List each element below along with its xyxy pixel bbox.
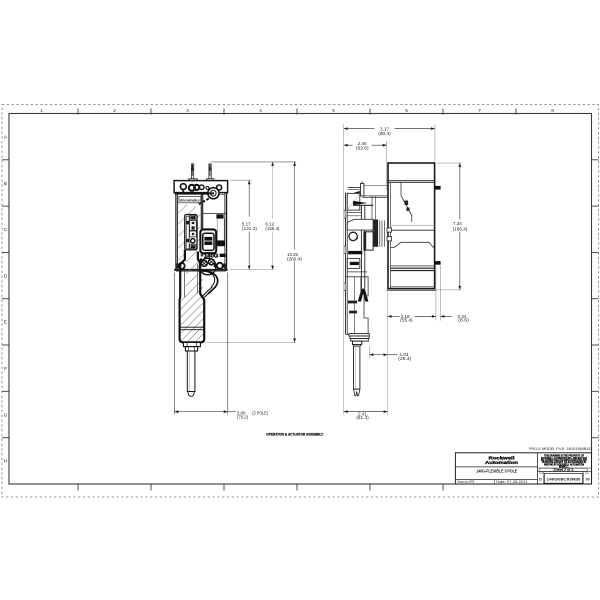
svg-text:(61.4): (61.4) bbox=[356, 415, 369, 420]
svg-text:8: 8 bbox=[551, 108, 554, 113]
svg-text:2: 2 bbox=[113, 108, 116, 113]
svg-text:(62.6): (62.6) bbox=[356, 145, 369, 150]
svg-text:(186.4): (186.4) bbox=[453, 227, 468, 232]
svg-text:Allen-Bradley: Allen-Bradley bbox=[180, 198, 200, 202]
svg-text:140G-FLEXIBLE 3 POLE: 140G-FLEXIBLE 3 POLE bbox=[476, 469, 517, 474]
svg-text:(76.2): (76.2) bbox=[237, 414, 249, 419]
svg-text:Drawn by: RFB: Drawn by: RFB bbox=[457, 480, 474, 484]
svg-text:OPERATOR & ACTUATOR ASSEMBLY: OPERATOR & ACTUATOR ASSEMBLY bbox=[266, 431, 323, 436]
svg-text:G: G bbox=[4, 412, 8, 417]
svg-text:B: B bbox=[4, 181, 7, 186]
svg-text:140G08C03N80: 140G08C03N80 bbox=[547, 476, 582, 481]
svg-text:PRO-E MODEL FILE: 140G1954B1E: PRO-E MODEL FILE: 140G1954B1E bbox=[529, 447, 592, 451]
svg-text:(260.4): (260.4) bbox=[287, 256, 302, 261]
svg-text:4: 4 bbox=[259, 108, 262, 113]
svg-text:(131.3): (131.3) bbox=[242, 226, 258, 231]
svg-text:7.34: 7.34 bbox=[453, 221, 462, 226]
svg-text:(8.6): (8.6) bbox=[458, 318, 469, 323]
svg-text:H: H bbox=[4, 459, 7, 464]
svg-text:00: 00 bbox=[586, 478, 590, 482]
svg-text:(80.4): (80.4) bbox=[378, 131, 391, 136]
svg-text:Automation: Automation bbox=[485, 460, 518, 466]
svg-text:(3 POLE): (3 POLE) bbox=[252, 410, 268, 415]
svg-text:E: E bbox=[4, 320, 7, 325]
svg-text:5: 5 bbox=[332, 108, 335, 113]
svg-text:1: 1 bbox=[40, 108, 43, 113]
svg-text:(155.4): (155.4) bbox=[265, 226, 280, 231]
svg-text:(26.4): (26.4) bbox=[398, 356, 412, 361]
svg-text:D: D bbox=[539, 477, 542, 482]
svg-text:F: F bbox=[4, 366, 7, 371]
svg-text:3: 3 bbox=[186, 108, 189, 113]
svg-text:(55.4): (55.4) bbox=[400, 318, 413, 323]
svg-text:Date: 07-06-2011: Date: 07-06-2011 bbox=[496, 480, 527, 484]
svg-text:6: 6 bbox=[405, 108, 408, 113]
svg-text:7: 7 bbox=[478, 108, 481, 113]
